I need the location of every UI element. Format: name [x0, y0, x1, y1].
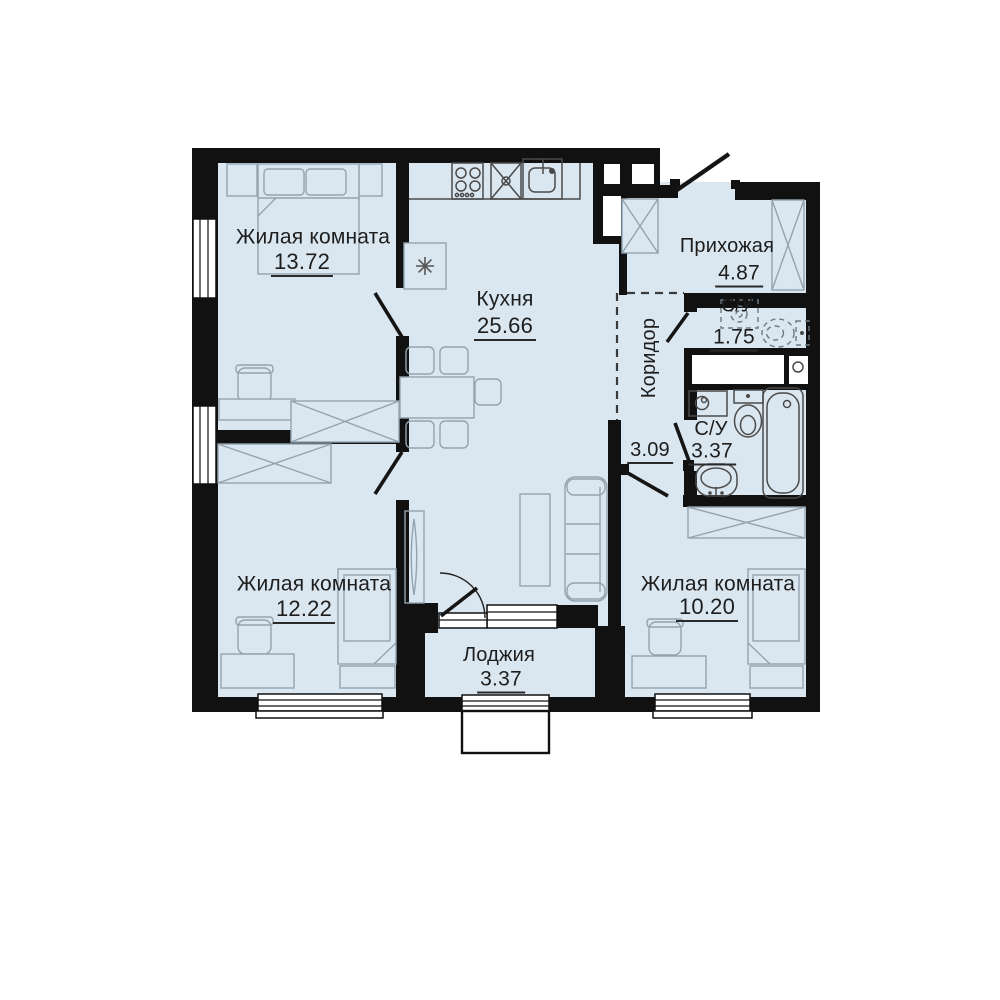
fridge-icon: [404, 243, 446, 289]
wall-wc2-left-stub: [684, 471, 697, 497]
shaft-niche-3: [603, 196, 621, 236]
area-value: 3.37: [688, 441, 736, 466]
wall-wc2-living3: [683, 495, 806, 507]
window-living2-side: [193, 406, 216, 484]
room-label-living3: Жилая комната: [641, 574, 795, 595]
wall-living2-kitchen: [396, 500, 409, 603]
duct-niche: [692, 355, 784, 384]
balcony-outline: [462, 711, 549, 753]
room-area-wc2: 3.37: [688, 441, 736, 466]
room-area-living2: 12.22: [273, 598, 335, 624]
room-label-hallway: Прихожая: [680, 236, 774, 256]
room-label-wc2: С/У: [694, 419, 727, 439]
shaft-niche-1: [604, 164, 620, 184]
wall-top: [192, 148, 660, 163]
wardrobe-icon: [622, 199, 658, 253]
wardrobe-icon: [772, 200, 804, 290]
shaft-niche-2: [632, 164, 654, 184]
room-label-kitchen: Кухня: [476, 289, 533, 310]
room-area-corridor: 3.09: [627, 440, 673, 464]
area-value: 3.37: [477, 669, 525, 694]
sofa-icon: [565, 477, 607, 601]
wardrobe-icon: [291, 401, 399, 442]
window-living3-bottom: [653, 694, 752, 718]
floorplan-drawing: [0, 0, 1000, 1000]
wardrobe-icon: [218, 444, 331, 483]
nightstand-icon: [227, 164, 257, 196]
area-value: 1.75: [710, 327, 758, 352]
wall-right: [806, 182, 820, 712]
room-label-corridor: Коридор: [639, 318, 659, 398]
duct-niche-small: [789, 356, 808, 384]
wall-kitchen-loggia: [557, 605, 598, 628]
desk-icon: [221, 654, 294, 688]
area-value: 25.66: [474, 315, 536, 341]
area-value: 13.72: [271, 251, 333, 277]
area-value: 10.20: [676, 596, 738, 622]
area-value: 3.09: [627, 440, 673, 464]
room-label-loggia: Лоджия: [463, 645, 535, 665]
desk-icon: [219, 399, 295, 420]
wall-loggia-left: [396, 633, 425, 712]
desk-icon: [632, 656, 706, 688]
room-label-living2: Жилая комната: [237, 574, 391, 595]
room-area-wc1: 1.75: [710, 327, 758, 352]
area-value: 4.87: [715, 263, 763, 288]
room-label-living1: Жилая комната: [236, 227, 390, 248]
wall-loggia-left-chunk: [396, 603, 438, 633]
floorplan: Жилая комната 13.72 Кухня 25.66 Прихожая…: [0, 0, 1000, 1000]
room-area-kitchen: 25.66: [474, 315, 536, 341]
room-area-living1: 13.72: [271, 251, 333, 277]
wall-corridor-living3: [608, 420, 621, 712]
room-label-wc1: С/У: [721, 297, 753, 316]
wardrobe-icon: [688, 507, 805, 538]
nightstand-icon: [359, 164, 382, 196]
area-value: 12.22: [273, 598, 335, 624]
window-kitchen-loggia: [487, 605, 557, 628]
window-loggia: [462, 695, 549, 711]
room-area-hallway: 4.87: [715, 263, 763, 288]
room-area-living3: 10.20: [676, 596, 738, 622]
window-living2-bottom: [256, 694, 383, 718]
window-living1: [193, 219, 216, 298]
entry-stop-nub: [731, 180, 740, 189]
coffee-table-icon: [520, 494, 550, 586]
wall-hall-top: [735, 182, 820, 200]
room-area-loggia: 3.37: [477, 669, 525, 694]
